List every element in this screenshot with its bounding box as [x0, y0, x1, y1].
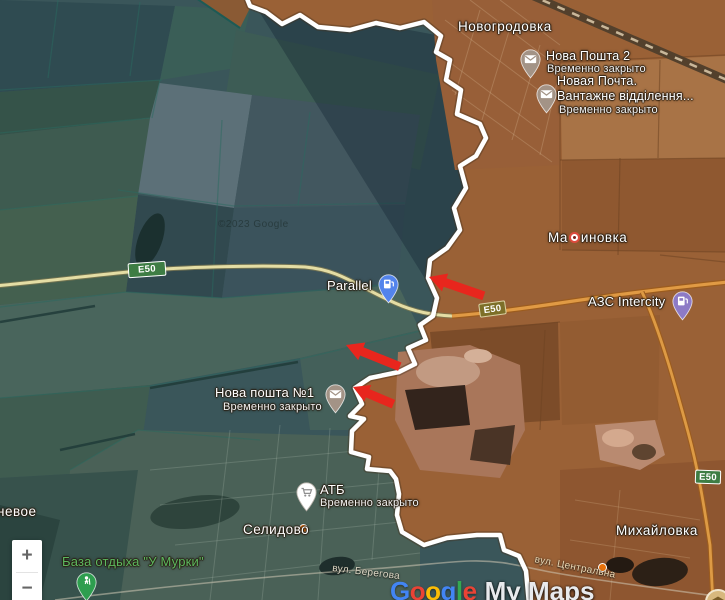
plus-icon: + [21, 545, 32, 567]
logo-letter-e: e [463, 576, 477, 600]
marinovka-text-before: Ма [548, 230, 568, 245]
marinovka-text-after: иновка [581, 230, 627, 245]
status-label-nova-poshta-1: Временно закрыто [223, 401, 322, 413]
town-label-mikhaylovka: Михайловка [616, 523, 698, 538]
map-pin-azs-intercity-fuel[interactable] [672, 291, 693, 321]
route-badge-e50-south: E50 [695, 470, 721, 485]
logo-letter-o1: o [410, 576, 425, 600]
map-pin-nova-poshta-2[interactable] [520, 49, 541, 79]
map-pin-atb-store[interactable] [296, 482, 317, 512]
zoom-out-button[interactable]: − [12, 573, 42, 600]
logo-letter-g2: g [441, 576, 456, 600]
logo-my-maps-text: My Maps [485, 576, 595, 600]
envelope-icon [524, 55, 535, 63]
bank-building-icon [711, 596, 725, 600]
logo-letter-o2: o [425, 576, 440, 600]
map-pin-novaya-pochta[interactable] [536, 84, 557, 114]
place-label-murki: База отдыха "У Мурки" [62, 554, 204, 569]
poi-dot-marinovka[interactable] [569, 232, 580, 243]
place-label-novaya-pochta-line1: Новая Почта. [557, 74, 637, 88]
map-attribution: ©2023 Google [218, 219, 289, 230]
town-label-novogrodovka: Новогродовка [458, 19, 552, 34]
google-my-maps-logo[interactable]: G o o g l e My Maps [390, 576, 594, 600]
zoom-in-button[interactable]: + [12, 540, 42, 572]
town-label-partial-west: невое [0, 504, 37, 519]
map-pin-nova-poshta-1[interactable] [325, 384, 346, 414]
route-badge-e50-west: E50 [128, 261, 167, 279]
map-pin-parallel-fuel[interactable] [378, 274, 399, 304]
place-label-nova-poshta-2: Нова Пошта 2 [546, 49, 630, 63]
logo-letter-g1: G [390, 576, 410, 600]
place-label-azs-intercity: АЗС Intercity [588, 294, 665, 309]
place-label-novaya-pochta-line2: Вантажне відділення... [557, 89, 694, 103]
status-label-novaya-pochta: Временно закрыто [559, 104, 658, 116]
map-pin-murki-recreation[interactable] [76, 572, 97, 600]
place-label-parallel: Parallel [327, 278, 372, 293]
place-label-nova-poshta-1: Нова пошта №1 [215, 385, 314, 400]
envelope-icon [329, 390, 340, 398]
status-label-atb: Временно закрыто [320, 497, 419, 509]
place-label-atb: АТБ [320, 482, 345, 497]
minus-icon: − [21, 578, 32, 600]
town-label-selidovo: Селидово [243, 522, 309, 537]
envelope-icon [540, 90, 551, 98]
zoom-control: + − [12, 540, 42, 600]
logo-letter-l: l [456, 576, 463, 600]
map-canvas[interactable]: E50 E50 E50 [0, 0, 725, 600]
town-label-marinovka: Ма иновка [548, 230, 627, 245]
